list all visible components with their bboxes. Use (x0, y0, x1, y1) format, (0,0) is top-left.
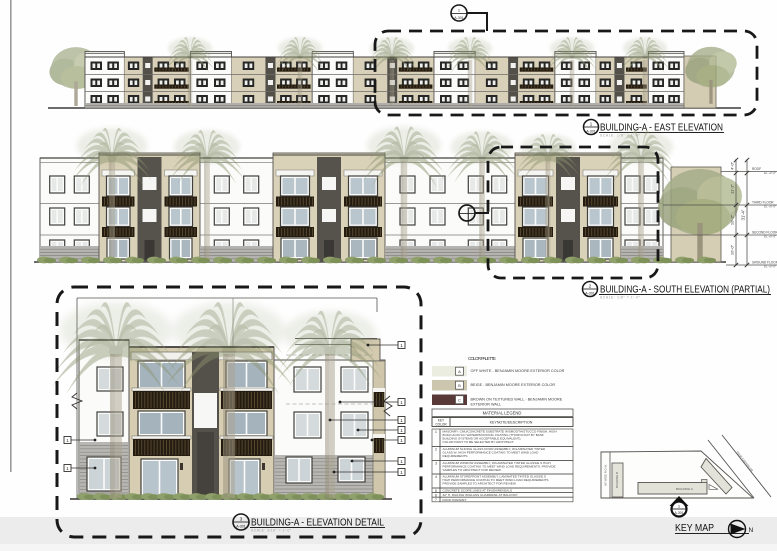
svg-text:EL +0'-0": EL +0'-0" (764, 265, 776, 269)
svg-text:1: 1 (435, 430, 437, 434)
svg-text:BUILDING B: BUILDING B (615, 472, 619, 488)
svg-text:10'-2": 10'-2" (730, 214, 735, 225)
svg-text:OFF WHITE - BENJAMIN MOORE EXT: OFF WHITE - BENJAMIN MOORE EXTERIOR COLO… (471, 369, 565, 373)
svg-text:N: N (749, 527, 754, 534)
svg-text:A-301: A-301 (674, 511, 683, 515)
svg-text:5: 5 (435, 489, 437, 493)
svg-text:BEIGE - BENJAMIN MOORE EXTERIO: BEIGE - BENJAMIN MOORE EXTERIOR COLOR (471, 383, 556, 387)
svg-text:ROOF PARAPET: ROOF PARAPET (443, 498, 467, 502)
svg-text:EL +0'-0": EL +0'-0" (764, 205, 776, 209)
svg-text:4'-0": 4'-0" (730, 161, 735, 170)
svg-text:42" H. RAILING W/GLASS GUARDRA: 42" H. RAILING W/GLASS GUARDRAIL AT BALC… (443, 493, 518, 497)
svg-text:COLOR PAINT TO BE SELECTED BY: COLOR PAINT TO BE SELECTED BY ARCHITECT. (443, 440, 515, 444)
svg-text:6: 6 (435, 493, 437, 497)
svg-text:2: 2 (435, 447, 437, 451)
svg-text:EXTERIOR WALL: EXTERIOR WALL (471, 403, 502, 407)
svg-text:A-301: A-301 (454, 16, 464, 20)
svg-text:EL +0'-0": EL +0'-0" (764, 171, 776, 175)
svg-text:BUILDING-A - ELEVATION DETAIL: BUILDING-A - ELEVATION DETAIL (251, 517, 384, 529)
svg-text:BUILDING A: BUILDING A (676, 487, 693, 491)
svg-text:31'-4": 31'-4" (741, 209, 746, 220)
svg-text:A-301: A-301 (586, 130, 596, 134)
svg-text:EL +0'-0": EL +0'-0" (764, 235, 776, 239)
svg-text:4: 4 (435, 475, 437, 479)
svg-text:3: 3 (435, 461, 437, 465)
svg-text:B: B (458, 383, 461, 388)
svg-text:7: 7 (435, 498, 437, 502)
svg-text:COLOR PALETTE: COLOR PALETTE (468, 356, 496, 361)
svg-text:ROOF: ROOF (752, 167, 761, 171)
svg-text:A-301: A-301 (585, 292, 595, 296)
svg-text:PROVIDE SAMPLES TO ARCHITECT F: PROVIDE SAMPLES TO ARCHITECT FOR REVIEW. (443, 482, 517, 486)
svg-text:MATERIAL LEGEND: MATERIAL LEGEND (483, 411, 522, 416)
svg-text:KEYNOTE/DESCRIPTION: KEYNOTE/DESCRIPTION (490, 421, 533, 425)
svg-text:KEY MAP: KEY MAP (675, 522, 714, 534)
svg-text:CONCRETE SCORE LINES AT FINISH: CONCRETE SCORE LINES AT FINISH/REVEALS (443, 489, 513, 493)
svg-text:60' WIDE R.O.W.: 60' WIDE R.O.W. (604, 464, 608, 486)
svg-text:10'-0": 10'-0" (730, 244, 735, 255)
svg-text:SCALE: 1/8" = 1'-0": SCALE: 1/8" = 1'-0" (600, 296, 641, 300)
svg-text:SAMPLES TO ARCHITECT FOR REVIE: SAMPLES TO ARCHITECT FOR REVIEW (443, 468, 502, 472)
svg-text:BUILDING-A - SOUTH ELEVATION (: BUILDING-A - SOUTH ELEVATION (PARTIAL) (600, 284, 770, 296)
svg-text:SCALE: 3/16" = 1'-0": SCALE: 3/16" = 1'-0" (251, 529, 292, 533)
svg-text:BROWN ON TEXTURED WALL - BENJA: BROWN ON TEXTURED WALL - BENJAMIN MOORE (471, 398, 563, 402)
svg-text:A-301: A-301 (236, 525, 246, 529)
svg-text:C: C (458, 398, 461, 403)
svg-text:A: A (458, 369, 461, 374)
svg-text:COLOR: COLOR (435, 422, 447, 426)
svg-text:11'-2": 11'-2" (730, 183, 735, 193)
svg-text:REQUIREMENTS: REQUIREMENTS (443, 454, 468, 458)
svg-text:BUILDING-A - EAST ELEVATION: BUILDING-A - EAST ELEVATION (600, 122, 723, 134)
